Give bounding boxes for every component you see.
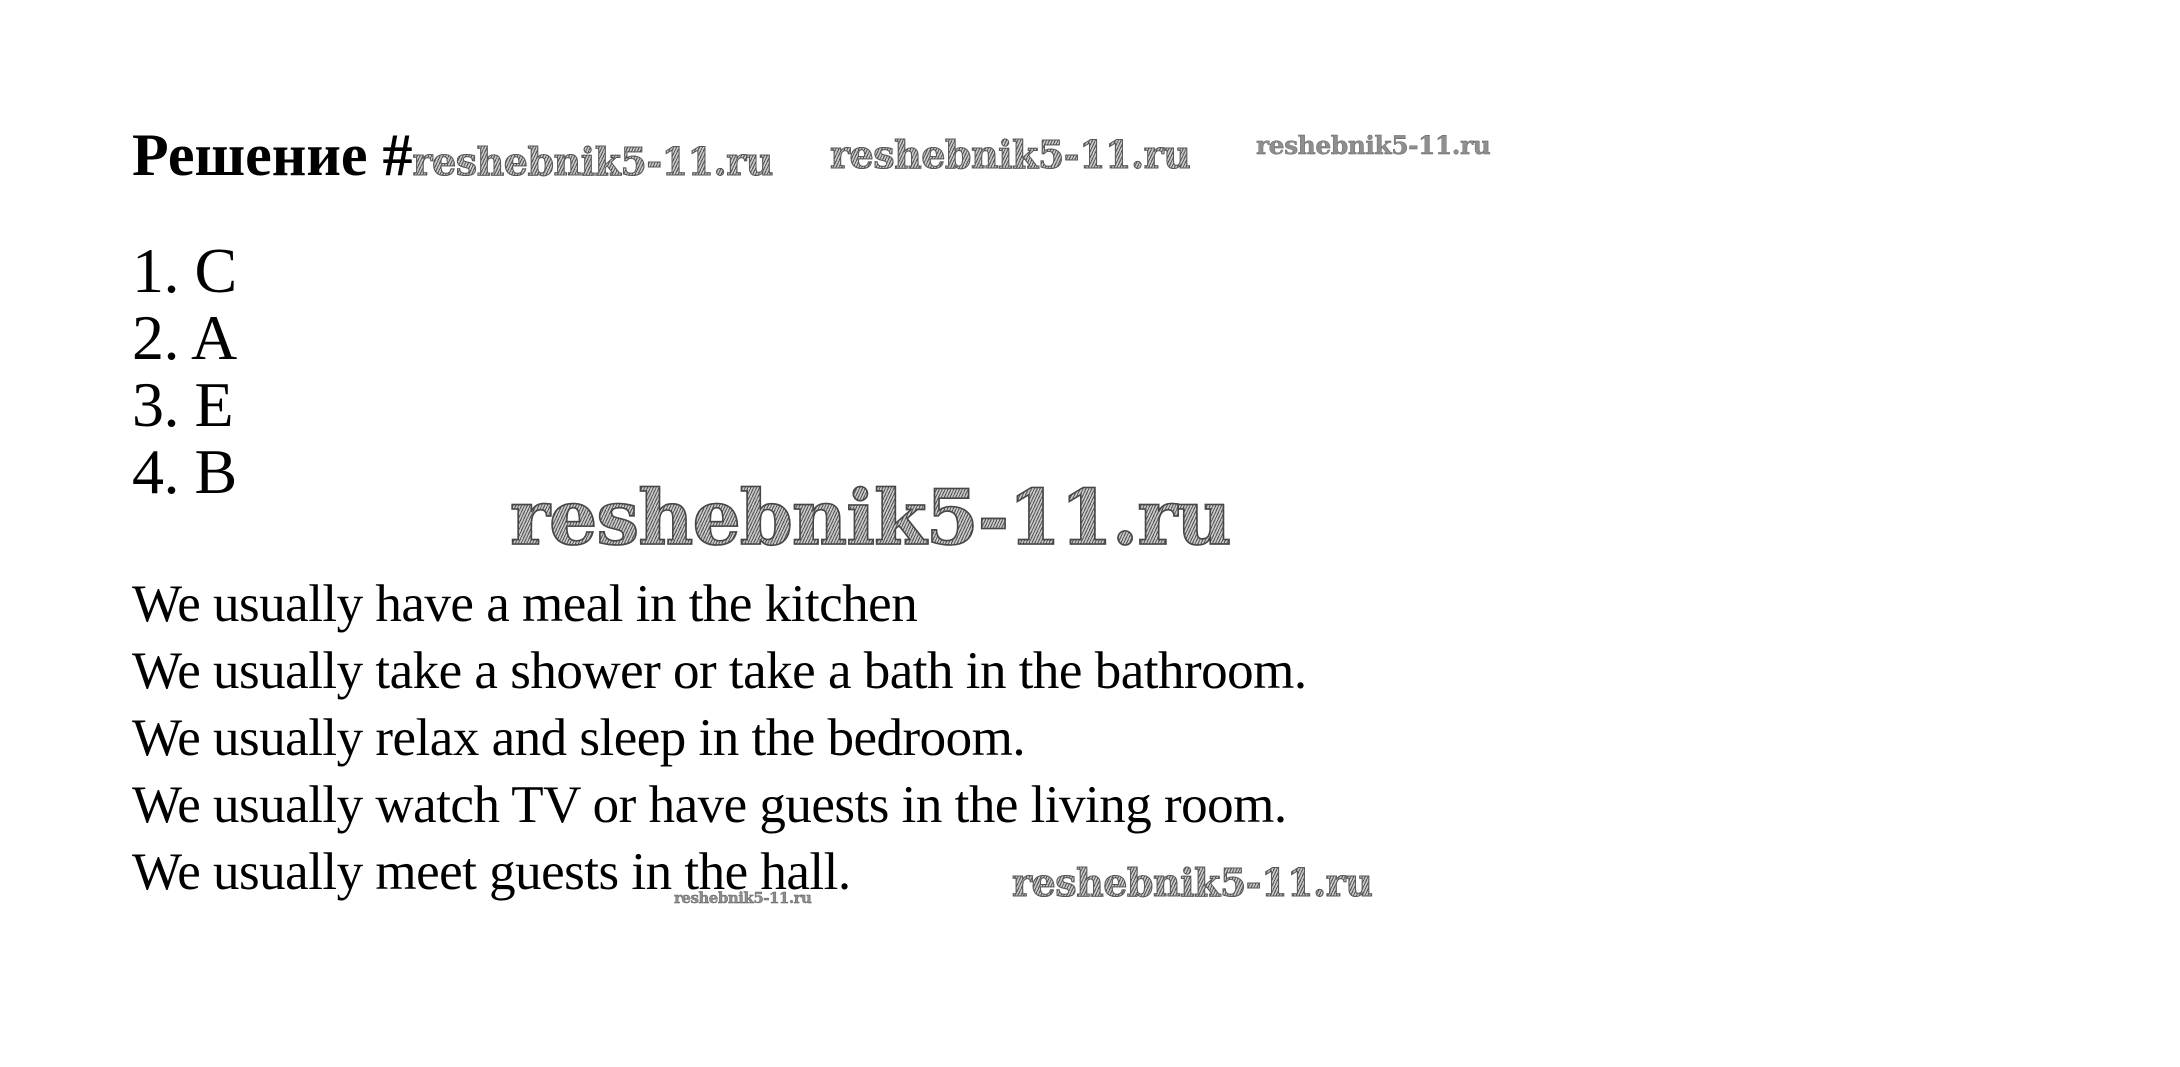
answer-item: 1. C bbox=[132, 237, 237, 304]
answer-item: 2. A bbox=[132, 304, 237, 371]
sentence-line: We usually take a shower or take a bath … bbox=[132, 638, 1307, 705]
page-title: Решение # bbox=[132, 122, 413, 188]
solution-page: Решение #reshebnik5-11.ru reshebnik5-11.… bbox=[0, 0, 2180, 1067]
sentence-line: We usually watch TV or have guests in th… bbox=[132, 772, 1307, 839]
sentence-line: We usually relax and sleep in the bedroo… bbox=[132, 705, 1307, 772]
watermark-top-center: reshebnik5-11.ru bbox=[830, 136, 1190, 174]
title-row: Решение #reshebnik5-11.ru bbox=[132, 122, 773, 204]
watermark-center-large: reshebnik5-11.ru bbox=[510, 480, 1231, 556]
answer-list: 1. C 2. A 3. E 4. B bbox=[132, 237, 237, 505]
sentence-list: We usually have a meal in the kitchen We… bbox=[132, 571, 1307, 906]
answer-item: 4. B bbox=[132, 438, 237, 505]
answer-item: 3. E bbox=[132, 371, 237, 438]
watermark-bottom-small: reshebnik5-11.ru bbox=[674, 891, 811, 906]
watermark-top-right: reshebnik5-11.ru bbox=[1256, 133, 1490, 158]
sentence-line: We usually have a meal in the kitchen bbox=[132, 571, 1307, 638]
watermark-bottom-right: reshebnik5-11.ru bbox=[1012, 864, 1372, 902]
watermark-after-title: reshebnik5-11.ru bbox=[413, 139, 773, 184]
